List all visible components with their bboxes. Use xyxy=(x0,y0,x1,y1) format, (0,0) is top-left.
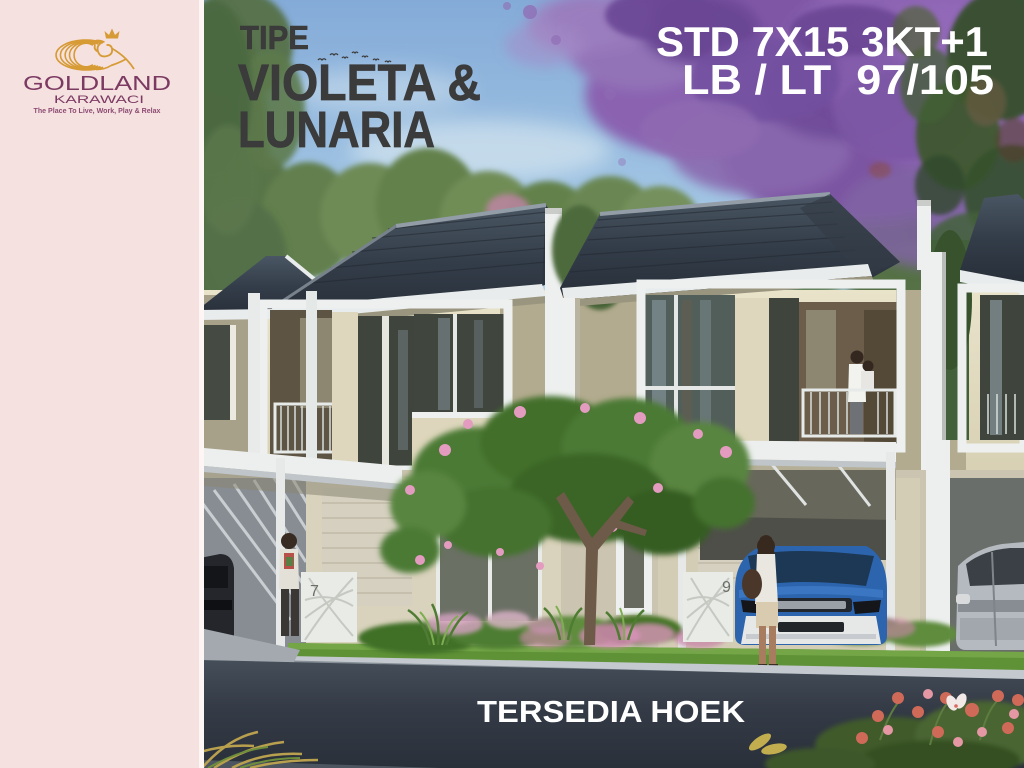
svg-text:KARAWACI: KARAWACI xyxy=(54,94,144,106)
svg-text:TERSEDIA HOEK: TERSEDIA HOEK xyxy=(477,694,746,729)
svg-text:9: 9 xyxy=(722,579,731,596)
svg-text:LB / LT 97/105: LB / LT 97/105 xyxy=(682,56,994,103)
svg-text:LUNARIA: LUNARIA xyxy=(238,101,435,158)
svg-text:7: 7 xyxy=(310,583,319,600)
svg-text:TIPE: TIPE xyxy=(240,19,309,56)
svg-text:GOLDLAND: GOLDLAND xyxy=(23,73,171,95)
svg-text:The Place To Live, Work, Play: The Place To Live, Work, Play & Relax xyxy=(34,106,162,115)
